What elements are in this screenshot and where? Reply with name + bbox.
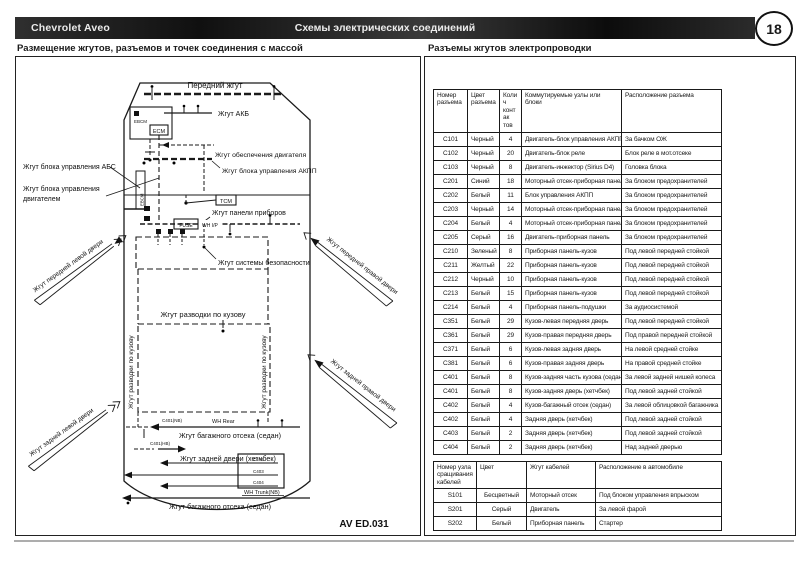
front-left-door-harness: Жгут передней левой двери <box>27 225 129 306</box>
connector-table-header-row: Номер разъемаЦвет разъемаКолич контак то… <box>434 90 722 133</box>
table-cell: 4 <box>500 413 522 427</box>
table-cell: За левой фарой <box>596 503 722 517</box>
table-cell: За левой облицовкой багажника <box>622 399 722 413</box>
table-cell: Белый <box>468 329 500 343</box>
tcm-node: TCM <box>184 195 236 205</box>
label-front-harness: Передний жгут <box>187 81 242 90</box>
table-cell: C205 <box>434 231 468 245</box>
connector-cluster <box>124 206 185 245</box>
table-row: C102Черный20Двигатель-блок релеБлок реле… <box>434 147 722 161</box>
splice-table-header-row: Номер узла сращивания кабелейЦветЖгут ка… <box>434 462 722 489</box>
table-cell: Под правой передней стойкой <box>622 329 722 343</box>
table-cell: S201 <box>434 503 477 517</box>
table-cell: C210 <box>434 245 468 259</box>
table-cell: Белый <box>477 517 527 531</box>
table-cell: Белый <box>468 301 500 315</box>
safety-harness: Жгут системы безопасности <box>203 224 310 267</box>
table-row: C402Белый4Кузов-багажный отсек (седан)За… <box>434 399 722 413</box>
column-header: Номер разъема <box>434 90 468 133</box>
table-cell: Под левой задней стойкой <box>622 385 722 399</box>
table-cell: 2 <box>500 427 522 441</box>
table-cell: S202 <box>434 517 477 531</box>
table-cell: Под левой задней стойкой <box>622 427 722 441</box>
table-cell: C213 <box>434 287 468 301</box>
table-cell: C214 <box>434 301 468 315</box>
label-door-fl: Жгут передней левой двери <box>31 237 105 294</box>
table-cell: 14 <box>500 203 522 217</box>
table-row: C404Белый2Задняя дверь (хетчбек)Над задн… <box>434 441 722 455</box>
table-row: C213Белый15Приборная панель-кузовПод лев… <box>434 287 722 301</box>
column-header: Жгут кабелей <box>527 462 596 489</box>
table-cell: C404 <box>434 441 468 455</box>
table-cell: Двигатель <box>527 503 596 517</box>
table-cell: Под левой задней стойкой <box>622 413 722 427</box>
header-bar: Chevrolet Aveo Схемы электрических соеди… <box>15 17 755 39</box>
table-cell: C211 <box>434 259 468 273</box>
table-cell: Задняя дверь (хетчбек) <box>522 427 622 441</box>
table-cell: Приборная панель-подушки <box>522 301 622 315</box>
label-c404: C404 <box>253 480 264 485</box>
table-cell: Кузов-багажный отсек (седан) <box>522 399 622 413</box>
table-cell: Приборная панель <box>527 517 596 531</box>
table-row: C401Белый8Кузов-задняя дверь (хетчбек)По… <box>434 385 722 399</box>
column-header: Расположение в автомобиле <box>596 462 722 489</box>
table-cell: Кузов-задняя дверь (хетчбек) <box>522 385 622 399</box>
table-cell: Под блоком управления впрыском <box>596 489 722 503</box>
column-header: Номер узла сращивания кабелей <box>434 462 477 489</box>
label-engine-supply: Жгут обеспечения двигателя <box>215 151 306 159</box>
drawing-number: AV ED.031 <box>339 519 389 530</box>
table-cell: За левой задней нишей колеса <box>622 371 722 385</box>
table-cell: На левой средней стойке <box>622 343 722 357</box>
table-cell: За блоком предохранителей <box>622 231 722 245</box>
table-row: C205Серый16Двигатель-приборная панельЗа … <box>434 231 722 245</box>
table-cell: Черный <box>468 133 500 147</box>
label-door-fr: Жгут передней правой двери <box>325 235 400 296</box>
table-cell: За бачком ОЖ <box>622 133 722 147</box>
table-cell: Кузов-левая передняя дверь <box>522 315 622 329</box>
page-number-badge: 18 <box>755 11 793 46</box>
table-cell: 22 <box>500 259 522 273</box>
table-cell: Белый <box>468 343 500 357</box>
table-cell: 29 <box>500 329 522 343</box>
table-cell: Двигатель-блок реле <box>522 147 622 161</box>
table-cell: 8 <box>500 245 522 259</box>
table-cell: За аудиосистемой <box>622 301 722 315</box>
label-ebcm: EBCM <box>134 119 147 124</box>
table-cell: За блоком предохранителей <box>622 203 722 217</box>
scan-edge-line <box>14 540 794 542</box>
table-cell: Белый <box>468 357 500 371</box>
table-row: C201Синий18Моторный отсек-приборная пане… <box>434 175 722 189</box>
table-cell: Под левой передней стойкой <box>622 287 722 301</box>
label-c401hb: C401(HB) <box>150 441 171 446</box>
table-cell: Стартер <box>596 517 722 531</box>
table-cell: Серый <box>477 503 527 517</box>
table-cell: Приборная панель-кузов <box>522 287 622 301</box>
table-cell: C371 <box>434 343 468 357</box>
table-row: S202БелыйПриборная панельСтартер <box>434 517 722 531</box>
table-cell: Синий <box>468 175 500 189</box>
table-cell: Двигатель-блок управления АКПП <box>522 133 622 147</box>
label-dash-harness: Жгут панели приборов <box>212 209 286 217</box>
table-cell: Кузов-правая передняя дверь <box>522 329 622 343</box>
table-row: C202Белый11Блок управления АКППЗа блоком… <box>434 189 722 203</box>
table-cell: Моторный отсек <box>527 489 596 503</box>
table-cell: Кузов-левая задняя дверь <box>522 343 622 357</box>
table-cell: Задняя дверь (хетчбек) <box>522 441 622 455</box>
page-title: Схемы электрических соединений <box>15 22 755 34</box>
table-row: C351Белый29Кузов-левая передняя дверьПод… <box>434 315 722 329</box>
table-cell: Белый <box>468 441 500 455</box>
connector-table: Номер разъемаЦвет разъемаКолич контак то… <box>433 89 722 455</box>
table-cell: Белый <box>468 287 500 301</box>
label-fuse: FUSE <box>179 223 193 229</box>
right-section-title: Разъемы жгутов электропроводки <box>428 43 591 54</box>
table-row: C381Белый6Кузов-правая задняя дверьНа пр… <box>434 357 722 371</box>
instrument-panel-harness: Жгут панели приборов FUSE WH I/P <box>140 209 300 235</box>
label-engine-ecu-1: Жгут блока управления <box>23 185 100 193</box>
table-cell: 4 <box>500 217 522 231</box>
table-cell: C201 <box>434 175 468 189</box>
table-cell: C402 <box>434 399 468 413</box>
table-cell: Приборная панель-кузов <box>522 273 622 287</box>
table-row: C214Белый4Приборная панель-подушкиЗа ауд… <box>434 301 722 315</box>
table-cell: 4 <box>500 301 522 315</box>
table-cell: 15 <box>500 287 522 301</box>
label-engine-ecu-2: двигателем <box>23 196 61 203</box>
column-header: Расположение разъема <box>622 90 722 133</box>
table-cell: Желтый <box>468 259 500 273</box>
table-cell: 18 <box>500 175 522 189</box>
front-harness: Передний жгут <box>144 81 284 100</box>
table-cell: Серый <box>468 231 500 245</box>
table-cell: C403 <box>434 427 468 441</box>
table-cell: Под левой передней стойкой <box>622 315 722 329</box>
tables-panel: Номер разъемаЦвет разъемаКолич контак то… <box>424 56 796 536</box>
column-header: Цвет разъема <box>468 90 500 133</box>
table-row: C402Белый4Задняя дверь (хетчбек)Под лево… <box>434 413 722 427</box>
label-akpp-harness: Жгут блока управления АКПП <box>222 167 317 175</box>
table-cell: Черный <box>468 273 500 287</box>
table-cell: 4 <box>500 399 522 413</box>
table-cell: 4 <box>500 133 522 147</box>
table-cell: C102 <box>434 147 468 161</box>
table-row: C203Черный14Моторный отсек-приборная пан… <box>434 203 722 217</box>
table-cell: 16 <box>500 231 522 245</box>
table-cell: За блоком предохранителей <box>622 189 722 203</box>
table-cell: Задняя дверь (хетчбек) <box>522 413 622 427</box>
table-cell: 10 <box>500 273 522 287</box>
table-cell: Блок управления АКПП <box>522 189 622 203</box>
table-cell: За блоком предохранителей <box>622 175 722 189</box>
table-cell: Кузов-задняя часть кузова (седан) <box>522 371 622 385</box>
table-cell: C103 <box>434 161 468 175</box>
table-cell: C212 <box>434 273 468 287</box>
table-cell: Головка блока <box>622 161 722 175</box>
table-cell: На правой средней стойке <box>622 357 722 371</box>
table-row: C204Белый4Моторный отсек-приборная панел… <box>434 217 722 231</box>
table-cell: C351 <box>434 315 468 329</box>
label-battery-harness: Жгут АКБ <box>218 111 249 118</box>
table-cell: 6 <box>500 357 522 371</box>
table-cell: Двигатель-приборная панель <box>522 231 622 245</box>
label-abs-harness: Жгут блока управления АБС <box>23 163 116 171</box>
rear-left-door-harness: Жгут задней левой двери <box>21 391 123 472</box>
table-cell: Белый <box>468 217 500 231</box>
label-tcm: TCM <box>220 199 232 205</box>
label-door-rl: Жгут задней левой двери <box>28 406 96 458</box>
table-row: C211Желтый22Приборная панель-кузовПод ле… <box>434 259 722 273</box>
table-cell: 2 <box>500 441 522 455</box>
table-cell: S101 <box>434 489 477 503</box>
label-trunk-sedan-1: Жгут багажного отсека (седан) <box>179 431 281 440</box>
table-cell: C402 <box>434 413 468 427</box>
table-cell: Белый <box>468 427 500 441</box>
table-row: S201СерыйДвигательЗа левой фарой <box>434 503 722 517</box>
table-cell: C401 <box>434 385 468 399</box>
table-cell: 6 <box>500 343 522 357</box>
table-cell: Белый <box>468 413 500 427</box>
table-cell: C101 <box>434 133 468 147</box>
table-cell: Белый <box>468 189 500 203</box>
table-row: C361Белый29Кузов-правая передняя дверьПо… <box>434 329 722 343</box>
table-cell: Белый <box>468 399 500 413</box>
table-cell: C381 <box>434 357 468 371</box>
table-row: C101Черный4Двигатель-блок управления АКП… <box>434 133 722 147</box>
table-cell: Кузов-правая задняя дверь <box>522 357 622 371</box>
label-ebcm-tag: EBCM <box>140 193 145 206</box>
table-row: C401Белый8Кузов-задняя часть кузова (сед… <box>434 371 722 385</box>
engine-supply-harness: Жгут обеспечения двигателя Жгут блока уп… <box>143 151 317 175</box>
ecm-node: ECM <box>150 125 214 222</box>
left-section-title: Размещение жгутов, разъемов и точек соед… <box>17 43 303 54</box>
column-header: Колич контак тов <box>500 90 522 133</box>
label-c403: C403 <box>253 469 264 474</box>
harness-location-diagram: Передний жгут Жгут АКБ EBCM E <box>16 57 419 534</box>
table-cell: Двигатель-инжектор (Sirius D4) <box>522 161 622 175</box>
table-cell: Черный <box>468 203 500 217</box>
table-cell: За блоком предохранителей <box>622 217 722 231</box>
table-cell: C202 <box>434 189 468 203</box>
table-cell: Блок реле в мот.отсеке <box>622 147 722 161</box>
table-cell: 29 <box>500 315 522 329</box>
table-cell: 20 <box>500 147 522 161</box>
column-header: Цвет <box>477 462 527 489</box>
table-row: C210Зеленый8Приборная панель-кузовПод ле… <box>434 245 722 259</box>
table-row: S101БесцветныйМоторный отсекПод блоком у… <box>434 489 722 503</box>
label-trunk-sedan-2: Жгут багажного отсека (седан) <box>169 502 271 511</box>
front-right-door-harness: Жгут передней правой двери <box>300 222 401 308</box>
table-cell: C204 <box>434 217 468 231</box>
label-c401nb: C401(NB) <box>162 418 183 423</box>
ebcm-box: EBCM <box>130 107 172 162</box>
rear-right-door-harness: Жгут задней правой двери <box>304 344 405 430</box>
label-ecm: ECM <box>153 129 166 135</box>
table-cell: Белый <box>468 315 500 329</box>
table-cell: Белый <box>468 385 500 399</box>
table-row: C103Черный8Двигатель-инжектор (Sirius D4… <box>434 161 722 175</box>
table-cell: 11 <box>500 189 522 203</box>
table-cell: 8 <box>500 161 522 175</box>
table-cell: C361 <box>434 329 468 343</box>
table-cell: Черный <box>468 161 500 175</box>
table-cell: Зеленый <box>468 245 500 259</box>
table-cell: Моторный отсек-приборная панель <box>522 175 622 189</box>
label-safety-harness: Жгут системы безопасности <box>218 259 310 267</box>
label-body-harness-vr: Жгут разводки по кузову <box>261 335 268 409</box>
label-body-harness-vl: Жгут разводки по кузову <box>128 335 135 409</box>
table-row: C371Белый6Кузов-левая задняя дверьНа лев… <box>434 343 722 357</box>
column-header: Коммутируемые узлы или блоки <box>522 90 622 133</box>
manual-page: Chevrolet Aveo Схемы электрических соеди… <box>0 0 800 563</box>
table-cell: Бесцветный <box>477 489 527 503</box>
table-cell: 8 <box>500 385 522 399</box>
table-cell: 8 <box>500 371 522 385</box>
table-cell: Приборная панель-кузов <box>522 259 622 273</box>
table-cell: C203 <box>434 203 468 217</box>
table-cell: Приборная панель-кузов <box>522 245 622 259</box>
table-cell: Над задней дверью <box>622 441 722 455</box>
table-cell: C401 <box>434 371 468 385</box>
table-cell: Моторный отсек-приборная панель <box>522 203 622 217</box>
table-row: C212Черный10Приборная панель-кузовПод ле… <box>434 273 722 287</box>
table-cell: Под левой передней стойкой <box>622 273 722 287</box>
battery-harness: Жгут АКБ <box>164 105 249 118</box>
table-cell: Белый <box>468 371 500 385</box>
table-row: C403Белый2Задняя дверь (хетчбек)Под лево… <box>434 427 722 441</box>
table-cell: Моторный отсек-приборная панель <box>522 217 622 231</box>
label-wh-rear: WH Rear <box>212 419 235 425</box>
diagram-panel: Передний жгут Жгут АКБ EBCM E <box>15 56 421 536</box>
table-cell: Под левой передней стойкой <box>622 245 722 259</box>
table-cell: Черный <box>468 147 500 161</box>
table-cell: Под левой передней стойкой <box>622 259 722 273</box>
left-body-tag: EBCM <box>136 171 145 209</box>
label-body-harness-h: Жгут разводки по кузову <box>161 310 246 319</box>
label-c402: C402 <box>253 457 264 462</box>
splice-table: Номер узла сращивания кабелейЦветЖгут ка… <box>433 461 722 531</box>
